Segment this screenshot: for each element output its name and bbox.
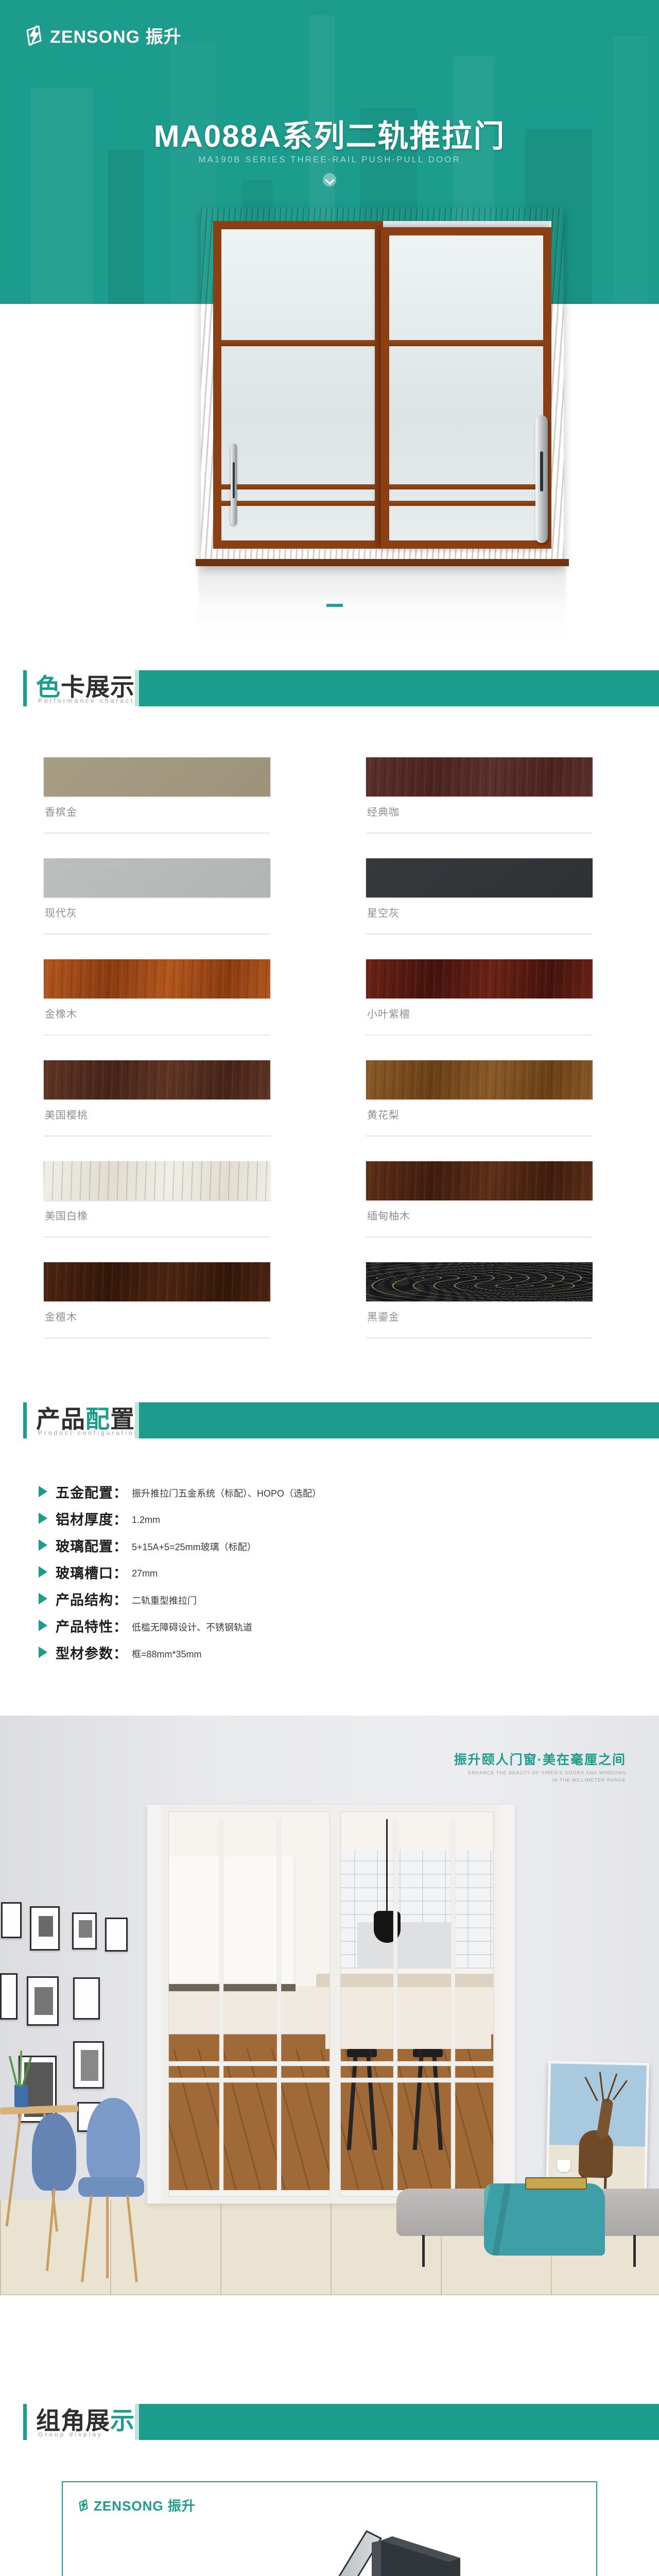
- plant-leaf: [9, 2056, 18, 2086]
- lifestyle-photo: 振升颐人门窗·美在毫厘之间 ENHANCE THE BEAUTY OF YIRE…: [0, 1716, 659, 2295]
- muntin-bar: [389, 484, 543, 489]
- book: [525, 2177, 587, 2190]
- scene-muntin: [168, 2078, 330, 2082]
- section-header-color-cards: 色卡展示 Performance characteristics: [0, 670, 659, 707]
- swatch-divider: [44, 1337, 270, 1338]
- swatch-divider: [44, 833, 270, 834]
- scene-muntin: [451, 1819, 455, 2190]
- swatch-divider: [366, 1337, 593, 1338]
- spec-value: 1.2mm: [132, 1515, 160, 1526]
- wall-art-frame: [0, 1973, 18, 2020]
- spec-row: 型材参数： 框=88mm*35mm: [39, 1642, 202, 1663]
- zensong-bolt-icon: [23, 23, 45, 48]
- spec-value: 框=88mm*35mm: [132, 1647, 202, 1660]
- spec-label: 铝材厚度：: [56, 1509, 128, 1529]
- wall-art-frame: [1, 1902, 22, 1938]
- spec-value: 二轨重型推拉门: [132, 1594, 197, 1607]
- section-header-product-config: 产品配置 Product configuration: [0, 1402, 659, 1439]
- profile-corner-render: [63, 2511, 596, 2576]
- spec-value: 低槛无障碍设计、不锈钢轨道: [132, 1620, 252, 1634]
- swatch-divider: [44, 1136, 270, 1137]
- arrow-bullet-icon: [39, 1620, 47, 1631]
- scene-muntin: [340, 2061, 494, 2066]
- spec-label: 产品特性：: [56, 1616, 128, 1636]
- scene-muntin: [393, 1819, 397, 2190]
- bench-leg: [633, 2235, 636, 2267]
- swatch-chip: [44, 1060, 270, 1099]
- color-swatch: 星空灰: [366, 858, 593, 897]
- spec-label: 产品结构：: [56, 1589, 128, 1609]
- swatch-chip: [44, 757, 270, 796]
- city-building-decor: [108, 149, 144, 304]
- section-subtitle-en: Product configuration: [38, 1429, 140, 1436]
- scene-door-panel-left: [162, 1805, 337, 2204]
- corner-sample-box: ZENSONG 振升: [62, 2481, 597, 2576]
- wall-art-frame: [27, 1976, 59, 2026]
- muntin-bar: [389, 340, 543, 346]
- color-swatch: 黄花梨: [366, 1060, 593, 1099]
- color-swatch: 香槟金: [44, 757, 270, 796]
- spec-row: 玻璃配置： 5+15A+5=25mm玻璃（标配）: [39, 1535, 256, 1555]
- swatch-name: 金橡木: [45, 1006, 77, 1021]
- door-panel-left: [213, 221, 383, 549]
- plant-vase: [14, 2084, 28, 2107]
- spec-label: 玻璃槽口：: [56, 1562, 128, 1582]
- scene-gold-handle: [324, 1908, 328, 1995]
- arrow-bullet-icon: [39, 1486, 47, 1497]
- accent-bar: [23, 670, 27, 706]
- teal-blanket: [484, 2183, 605, 2256]
- muntin-bar: [221, 340, 375, 346]
- muntin-bar: [221, 484, 375, 489]
- scene-caption-line1: ENHANCE THE BEAUTY OF YIREN'S DOORS AND …: [468, 1769, 626, 1776]
- swatch-name: 经典咖: [367, 804, 400, 819]
- swatch-name: 金檀木: [45, 1309, 77, 1324]
- swatch-chip: [366, 1161, 593, 1200]
- swatch-chip: [44, 1262, 270, 1301]
- arrow-bullet-icon: [39, 1566, 47, 1578]
- city-building-decor: [613, 36, 649, 304]
- swatch-divider: [366, 1236, 593, 1238]
- band-strip: [135, 1402, 139, 1438]
- color-swatch: 缅甸柚木: [366, 1161, 593, 1200]
- table-top: [0, 2105, 78, 2114]
- chair-seat: [78, 2177, 144, 2197]
- swatch-divider: [366, 833, 593, 834]
- spec-value: 5+15A+5=25mm玻璃（标配）: [132, 1540, 256, 1553]
- door-sill: [196, 559, 569, 566]
- spec-label: 型材参数：: [56, 1642, 128, 1663]
- scene-muntin: [340, 2078, 494, 2082]
- scene-muntin: [168, 2061, 330, 2066]
- page-title: MA088A系列二轨推拉门: [0, 111, 659, 156]
- swatch-divider: [44, 1236, 270, 1238]
- spec-value: 27mm: [132, 1568, 158, 1579]
- spec-row: 产品结构： 二轨重型推拉门: [39, 1588, 197, 1609]
- section-subtitle-en: Group display: [38, 2431, 103, 2438]
- door-panel-right: [381, 227, 551, 549]
- muntin-bar: [221, 501, 375, 506]
- scene-gold-handle: [335, 1908, 338, 1995]
- swatch-chip: [44, 959, 270, 998]
- wall-art-frame: [72, 1912, 97, 1950]
- bench-leg: [422, 2235, 425, 2267]
- swatch-name: 香槟金: [45, 804, 77, 819]
- swatch-chip: [366, 858, 593, 897]
- deer-antler: [613, 2080, 628, 2100]
- spec-label: 玻璃配置：: [56, 1535, 128, 1555]
- swatch-chip: [366, 959, 593, 998]
- swatch-divider: [366, 1136, 593, 1137]
- scene-muntin: [219, 1819, 223, 2190]
- band-strip: [135, 2404, 139, 2440]
- accent-bar: [23, 1402, 27, 1438]
- swatch-name: 美国白橡: [45, 1208, 88, 1223]
- arrow-bullet-icon: [39, 1647, 47, 1658]
- muntin-bar: [389, 501, 543, 506]
- swatch-name: 现代灰: [45, 905, 77, 920]
- swatch-chip: [44, 858, 270, 897]
- swatch-chip: [366, 757, 593, 796]
- swatch-divider: [44, 934, 270, 935]
- arrow-bullet-icon: [39, 1539, 47, 1551]
- deer-antler: [599, 2072, 604, 2102]
- color-swatch: 小叶紫檀: [366, 959, 593, 998]
- swatch-name: 黄花梨: [367, 1107, 400, 1122]
- swatch-divider: [366, 1035, 593, 1036]
- arrow-bullet-icon: [39, 1513, 47, 1524]
- page-subtitle: MA190B SERIES THREE-RAIL PUSH-PULL DOOR: [0, 155, 659, 165]
- color-swatch: 美国樱桃: [44, 1060, 270, 1099]
- product-door-image: [201, 208, 564, 564]
- color-swatch: 经典咖: [366, 757, 593, 796]
- color-swatch: 现代灰: [44, 858, 270, 897]
- scene-sliding-door: [147, 1805, 515, 2204]
- deer-neck: [596, 2098, 614, 2140]
- color-swatch: 美国白橡: [44, 1161, 270, 1200]
- coffee-cup: [557, 2160, 570, 2172]
- spec-row: 玻璃槽口： 27mm: [39, 1562, 158, 1582]
- door-handle-left: [231, 444, 237, 525]
- color-swatch: 金橡木: [44, 959, 270, 998]
- swatch-chip: [366, 1262, 593, 1301]
- color-swatch: 黑鎏金: [366, 1262, 593, 1301]
- chair-leg: [106, 2196, 109, 2278]
- swatch-name: 美国樱桃: [45, 1107, 88, 1122]
- scroll-down-button[interactable]: [323, 173, 336, 187]
- title-accent: 示: [110, 2407, 135, 2434]
- scene-caption: ENHANCE THE BEAUTY OF YIREN'S DOORS AND …: [468, 1769, 626, 1784]
- swatch-chip: [44, 1161, 270, 1200]
- swatch-name: 星空灰: [367, 905, 400, 920]
- section-header-corner: 组角展示 Group display: [0, 2404, 659, 2441]
- spec-row: 产品特性： 低槛无障碍设计、不锈钢轨道: [39, 1615, 252, 1636]
- deer-body: [578, 2130, 613, 2178]
- spec-row: 铝材厚度： 1.2mm: [39, 1508, 160, 1529]
- door-handle-right: [535, 415, 548, 543]
- band: [139, 2404, 659, 2440]
- door-reflection: [198, 566, 566, 640]
- swatch-divider: [366, 934, 593, 935]
- brand-logo-text: ZENSONG 振升: [50, 23, 182, 48]
- swatch-chip: [366, 1060, 593, 1099]
- color-swatch: 金檀木: [44, 1262, 270, 1301]
- product-page: ZENSONG 振升 MA088A系列二轨推拉门 MA190B SERIES T…: [0, 0, 659, 2576]
- band: [139, 1402, 659, 1438]
- spec-label: 五金配置：: [56, 1482, 128, 1502]
- wall-art-frame: [73, 1977, 100, 2020]
- deer-antler: [584, 2077, 598, 2102]
- brand-logo: ZENSONG 振升: [23, 23, 182, 48]
- spec-value: 振升推拉门五金系统（标配）、HOPO（选配）: [132, 1486, 321, 1500]
- scene-muntin: [277, 1819, 281, 2190]
- wall-art-frame: [73, 2041, 104, 2089]
- swatch-name: 小叶紫檀: [367, 1006, 410, 1021]
- wall-art-frame: [30, 1906, 60, 1951]
- scene-headline: 振升颐人门窗·美在毫厘之间: [454, 1750, 626, 1768]
- wall-art-frame: [105, 1918, 128, 1952]
- scene-caption-line2: IN THE MILLIMETER RANGE: [468, 1776, 626, 1784]
- swatch-name: 缅甸柚木: [367, 1208, 410, 1223]
- chair-back: [32, 2113, 76, 2191]
- swatch-divider: [44, 1035, 270, 1036]
- scene-door-panel-right: [334, 1805, 500, 2204]
- accent-bar: [23, 2404, 27, 2440]
- spec-row: 五金配置： 振升推拉门五金系统（标配）、HOPO（选配）: [39, 1481, 321, 1502]
- swatch-name: 黑鎏金: [367, 1309, 400, 1324]
- chair-back: [86, 2098, 140, 2185]
- arrow-bullet-icon: [39, 1593, 47, 1604]
- band-strip: [135, 670, 139, 706]
- band: [139, 670, 659, 706]
